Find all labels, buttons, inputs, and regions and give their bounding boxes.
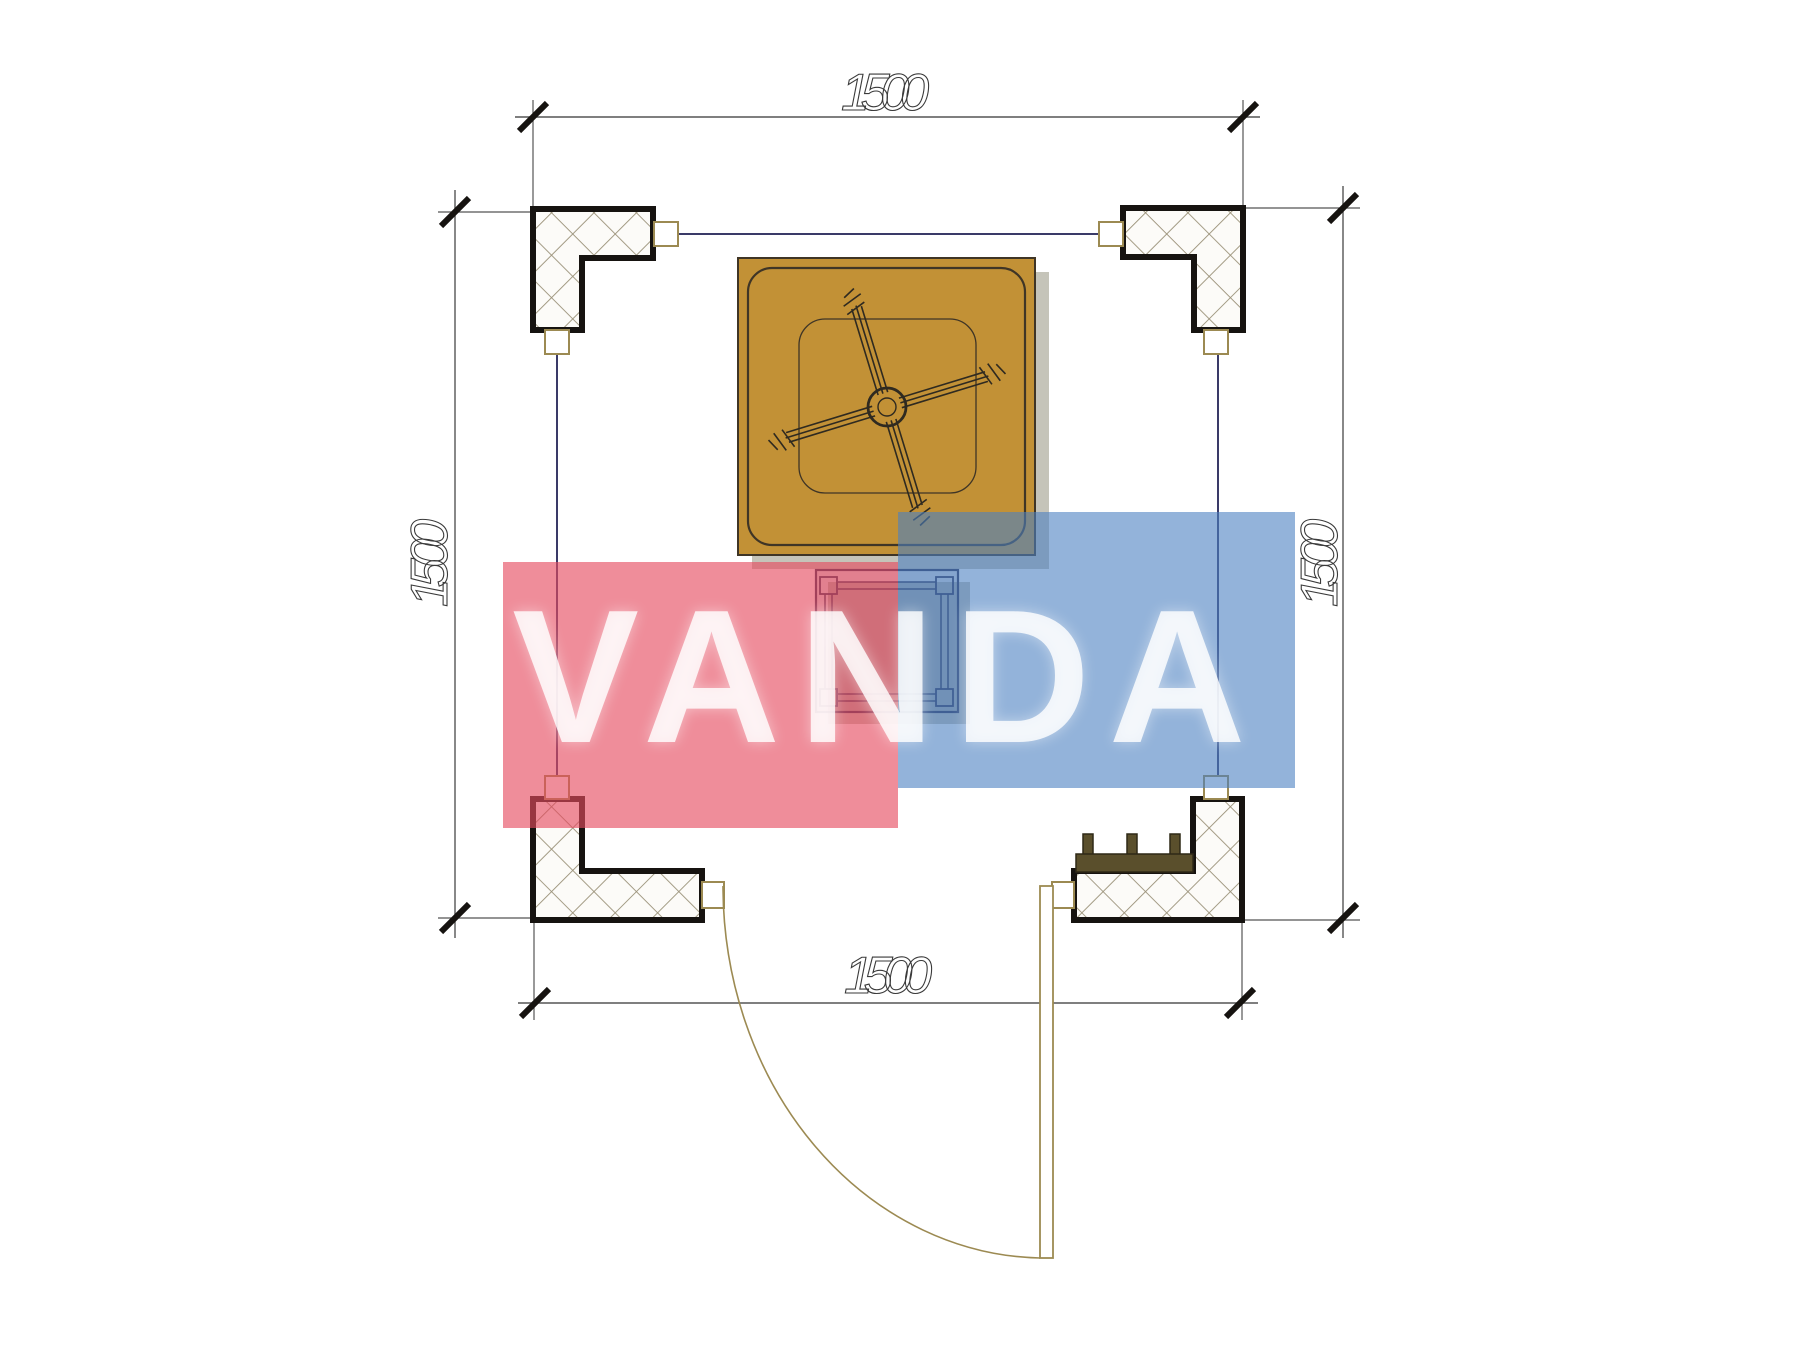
column-top-right bbox=[1123, 208, 1243, 330]
bench bbox=[1076, 834, 1193, 872]
bench-seat bbox=[1076, 854, 1193, 872]
column-top-left bbox=[533, 209, 653, 330]
dimension-label-right: 1500 bbox=[1291, 519, 1349, 607]
door-swing-arc bbox=[723, 886, 1040, 1258]
fitting-square bbox=[654, 222, 678, 246]
bench-post bbox=[1170, 834, 1180, 856]
fitting-square bbox=[545, 330, 569, 354]
door-leaf bbox=[1040, 886, 1053, 1258]
floor-plan-canvas: 1500 1500 1500 1500 bbox=[0, 0, 1800, 1350]
dimension-label-left: 1500 bbox=[401, 519, 459, 607]
fitting-square bbox=[702, 882, 724, 908]
bench-post bbox=[1127, 834, 1137, 856]
dimension-label-bottom: 1500 bbox=[844, 947, 932, 1005]
door bbox=[723, 886, 1053, 1258]
dimension-label-top: 1500 bbox=[841, 64, 929, 122]
bench-post bbox=[1083, 834, 1093, 856]
watermark-red-rect bbox=[503, 562, 898, 828]
fitting-square bbox=[1052, 882, 1074, 908]
fitting-square bbox=[1204, 330, 1228, 354]
fitting-square bbox=[1099, 222, 1123, 246]
canopy-outer bbox=[738, 258, 1035, 555]
watermark-blue-rect bbox=[898, 512, 1295, 788]
